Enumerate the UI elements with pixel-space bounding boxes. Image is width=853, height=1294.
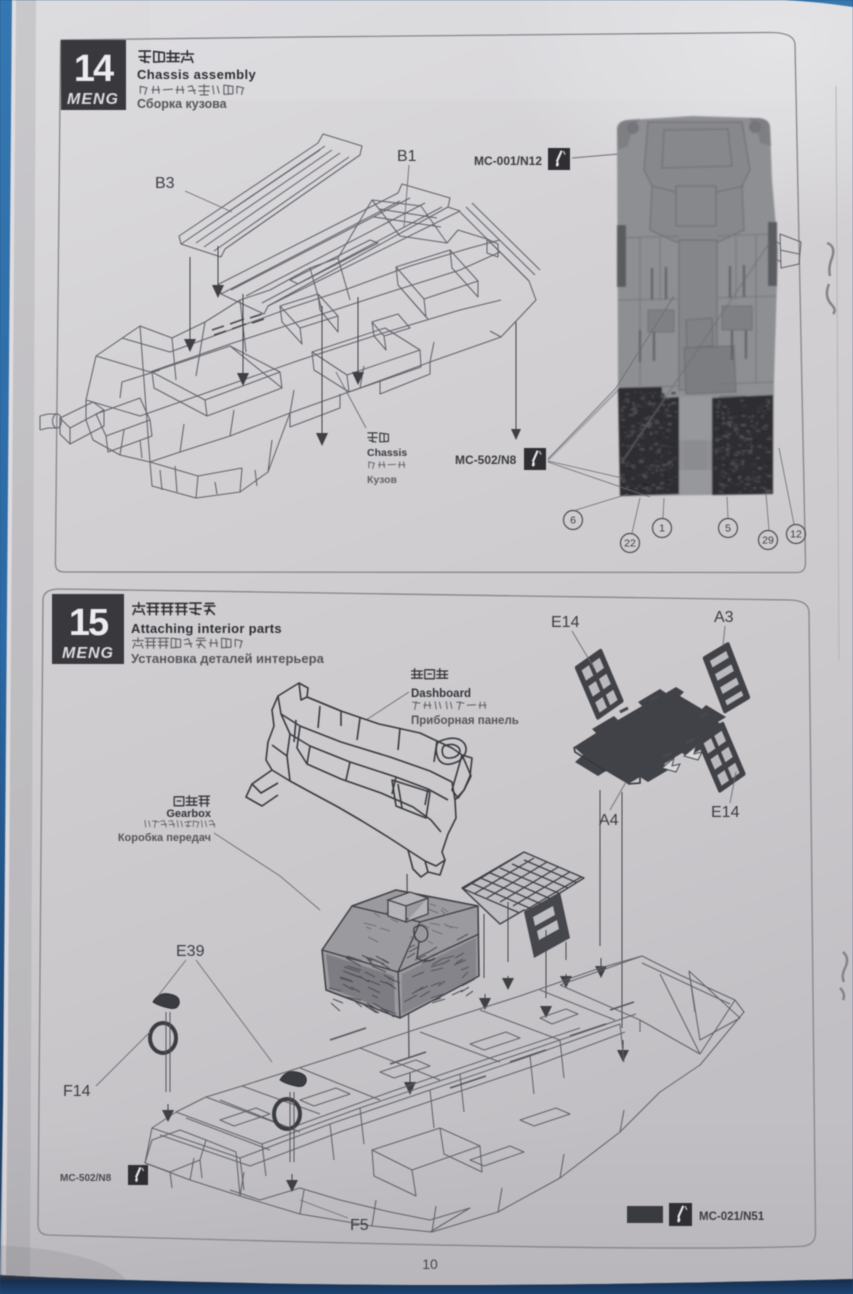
svg-text:5: 5 <box>725 523 731 535</box>
svg-text:Attaching interior parts: Attaching interior parts <box>131 621 282 636</box>
svg-text:14: 14 <box>74 48 114 90</box>
svg-text:MENG: MENG <box>62 645 114 662</box>
svg-text:B3: B3 <box>155 175 175 192</box>
svg-text:22: 22 <box>624 538 636 550</box>
svg-text:6: 6 <box>570 515 576 527</box>
svg-text:Dashboard: Dashboard <box>411 688 471 700</box>
svg-text:MC-502/N8: MC-502/N8 <box>455 453 517 467</box>
svg-text:A4: A4 <box>599 812 619 829</box>
svg-text:MENG: MENG <box>67 91 119 108</box>
svg-text:Chassis: Chassis <box>367 447 407 459</box>
svg-text:E14: E14 <box>711 804 740 821</box>
svg-text:MC-502/N8: MC-502/N8 <box>60 1173 112 1184</box>
svg-text:Установка деталей интерьера: Установка деталей интерьера <box>131 651 325 666</box>
svg-text:12: 12 <box>790 529 802 541</box>
svg-text:Коробка передач: Коробка передач <box>118 832 211 844</box>
svg-text:E39: E39 <box>176 943 205 960</box>
svg-text:E14: E14 <box>551 614 580 631</box>
svg-text:29: 29 <box>762 535 774 547</box>
svg-text:10: 10 <box>422 1256 438 1272</box>
svg-text:Кузов: Кузов <box>367 474 397 486</box>
svg-text:Gearbox: Gearbox <box>166 808 212 820</box>
svg-text:15: 15 <box>69 602 109 644</box>
svg-text:MC-001/N12: MC-001/N12 <box>474 154 542 168</box>
svg-text:Сборка кузова: Сборка кузова <box>137 97 228 111</box>
svg-text:MC-021/N51: MC-021/N51 <box>699 1211 765 1223</box>
svg-text:F5: F5 <box>350 1217 369 1234</box>
svg-text:A3: A3 <box>714 609 734 626</box>
svg-text:Приборная панель: Приборная панель <box>411 715 519 727</box>
svg-text:F14: F14 <box>63 1083 91 1100</box>
svg-text:1: 1 <box>659 523 665 535</box>
svg-text:Chassis assembly: Chassis assembly <box>137 67 257 82</box>
svg-text:B1: B1 <box>397 148 417 165</box>
